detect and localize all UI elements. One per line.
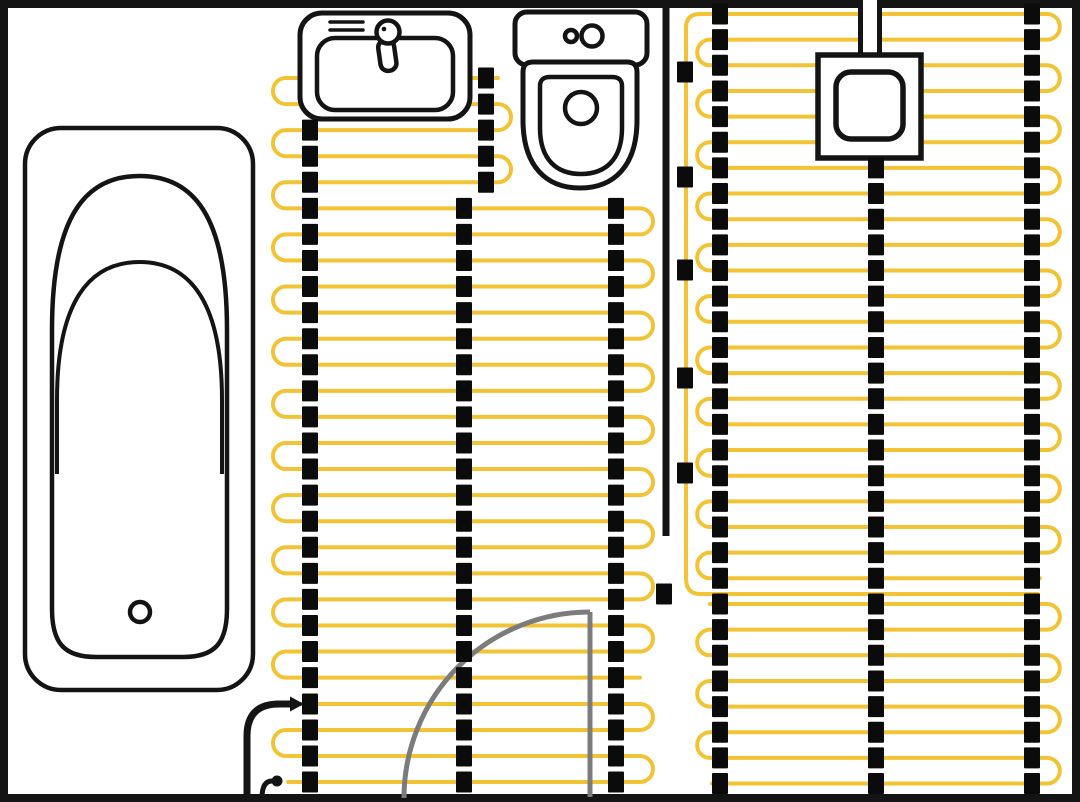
cable-fixing-clip <box>1024 363 1040 384</box>
cable-fixing-clip <box>712 132 728 153</box>
cable-fixing-clip <box>656 584 672 605</box>
toilet-button <box>582 26 603 47</box>
cable-fixing-clip <box>868 696 884 717</box>
cable-fixing-clip <box>1024 311 1040 332</box>
cable-fixing-clip <box>608 380 624 401</box>
cable-fixing-clip <box>1024 4 1040 25</box>
cable-fixing-clip <box>608 746 624 767</box>
faucet-dot <box>382 27 387 32</box>
cable-fixing-clip <box>302 694 318 715</box>
cable-fixing-clip <box>1024 722 1040 743</box>
cable-fixing-clip <box>302 250 318 271</box>
cable-fixing-clip <box>712 234 728 255</box>
cable-fixing-clip <box>456 198 472 219</box>
cable-fixing-clip <box>1024 234 1040 255</box>
bathtub <box>25 128 253 690</box>
bathtub-basin <box>52 176 227 657</box>
cable-fixing-clip <box>456 302 472 323</box>
cable-fixing-clip <box>456 615 472 636</box>
cable-fixing-clip <box>1024 132 1040 153</box>
cable-fixing-clip <box>677 167 693 188</box>
cable-fixing-clip <box>677 368 693 389</box>
cable-fixing-clip <box>1024 440 1040 461</box>
cable-fixing-clip <box>302 354 318 375</box>
cable-fixing-clip <box>868 773 884 794</box>
cable-fixing-clip <box>868 337 884 358</box>
cable-fixing-clip <box>868 363 884 384</box>
cable-fixing-clip <box>1024 414 1040 435</box>
cable-fixing-clip <box>868 645 884 666</box>
cable-fixing-clip <box>712 747 728 768</box>
cable-fixing-clip <box>302 224 318 245</box>
cable-fixing-clip <box>712 440 728 461</box>
cable-fixing-clip <box>302 172 318 193</box>
cable-fixing-clip <box>302 589 318 610</box>
cable-fixing-clip <box>712 594 728 615</box>
cable-fixing-clip <box>1024 260 1040 281</box>
cable-fixing-clip <box>478 120 494 141</box>
cable-fixing-clip <box>712 80 728 101</box>
cable-fixing-clip <box>1024 542 1040 563</box>
cable-fixing-clip <box>868 234 884 255</box>
cable-fixing-clip <box>302 459 318 480</box>
cable-fixing-clip <box>456 537 472 558</box>
faucet-icon <box>377 21 400 44</box>
cable-fixing-clip <box>712 722 728 743</box>
cable-fixing-clip <box>712 157 728 178</box>
cable-fixing-clip <box>478 146 494 167</box>
cable-fixing-clip <box>712 773 728 794</box>
cable-fixing-clip <box>302 432 318 453</box>
cable-fixing-clip <box>608 485 624 506</box>
cable-fixing-clip <box>1024 594 1040 615</box>
cable-fixing-clip <box>712 414 728 435</box>
toilet <box>515 12 647 188</box>
cable-fixing-clip <box>302 746 318 767</box>
sink <box>300 13 470 119</box>
cable-fixing-clip <box>868 414 884 435</box>
cable-fixing-clip <box>868 260 884 281</box>
cable-fixing-clip <box>712 337 728 358</box>
cable-fixing-clip <box>608 720 624 741</box>
cable-fixing-clip <box>1024 645 1040 666</box>
cable-fixing-clip <box>456 667 472 688</box>
cable-fixing-clip <box>1024 491 1040 512</box>
cable-fixing-clip <box>608 276 624 297</box>
toilet-flush-hole <box>565 92 597 124</box>
cable-fixing-clip <box>302 380 318 401</box>
cable-fixing-clip <box>456 459 472 480</box>
cable-fixing-clip <box>478 68 494 89</box>
cable-fixing-clip <box>1024 157 1040 178</box>
cable-fixing-clip <box>1024 388 1040 409</box>
cable-fixing-clip <box>712 106 728 127</box>
cable-fixing-clip <box>1024 106 1040 127</box>
cable-fixing-clip <box>712 363 728 384</box>
cable-fixing-clip <box>608 250 624 271</box>
cable-fixing-clip <box>302 563 318 584</box>
cable-fixing-clip <box>456 772 472 793</box>
bathtub-drain <box>130 602 150 622</box>
cable-fixing-clip <box>1024 773 1040 794</box>
cable-fixing-clip <box>608 615 624 636</box>
cable-fixing-clip <box>868 183 884 204</box>
cable-fixing-clip <box>1024 568 1040 589</box>
cable-fixing-clip <box>456 720 472 741</box>
cable-fixing-clip <box>868 311 884 332</box>
cable-fixing-clip <box>608 537 624 558</box>
cable-fixing-clip <box>456 589 472 610</box>
cable-fixing-clip <box>677 463 693 484</box>
cable-fixing-clip <box>456 380 472 401</box>
cable-fixing-clip <box>1024 696 1040 717</box>
cable-fixing-clip <box>1024 29 1040 50</box>
cable-fixing-clip <box>456 511 472 532</box>
cable-fixing-clip <box>868 670 884 691</box>
cable-fixing-clip <box>608 224 624 245</box>
cable-fixing-clip <box>1024 286 1040 307</box>
cable-fixing-clip <box>712 670 728 691</box>
cable-fixing-clip <box>712 29 728 50</box>
cable-fixing-clip <box>1024 209 1040 230</box>
cable-fixing-clip <box>868 465 884 486</box>
cable-fixing-clip <box>1024 55 1040 76</box>
cable-fixing-clip <box>1024 747 1040 768</box>
cable-fixing-clip <box>608 328 624 349</box>
cable-fixing-clip <box>868 542 884 563</box>
cable-fixing-clip <box>478 172 494 193</box>
cable-fixing-clip <box>712 645 728 666</box>
cable-fixing-clip <box>302 485 318 506</box>
cable-fixing-clip <box>868 491 884 512</box>
cable-fixing-clip <box>302 615 318 636</box>
cable-fixing-clip <box>302 146 318 167</box>
toilet-button <box>565 30 577 42</box>
cable-fixing-clip <box>1024 517 1040 538</box>
cable-fixing-clip <box>868 388 884 409</box>
cable-fixing-clip <box>608 354 624 375</box>
cable-fixing-clip <box>302 511 318 532</box>
cable-fixing-clip <box>712 517 728 538</box>
cable-fixing-clip <box>712 311 728 332</box>
cable-fixing-clip <box>712 388 728 409</box>
cable-fixing-clip <box>302 328 318 349</box>
cable-fixing-clip <box>608 694 624 715</box>
cable-fixing-clip <box>302 198 318 219</box>
cable-fixing-clip <box>868 440 884 461</box>
cable-fixing-clip <box>302 406 318 427</box>
cable-fixing-clip <box>1024 183 1040 204</box>
cable-fixing-clip <box>868 594 884 615</box>
cable-fixing-clip <box>302 641 318 662</box>
cable-fixing-clip <box>1024 670 1040 691</box>
cable-fixing-clip <box>1024 619 1040 640</box>
cable-fixing-clip <box>456 276 472 297</box>
cable-fixing-clip <box>712 209 728 230</box>
cable-fixing-clip <box>302 667 318 688</box>
cable-fixing-clip <box>712 4 728 25</box>
cable-fixing-clip <box>712 619 728 640</box>
cable-fixing-clip <box>868 286 884 307</box>
thermostat-dial <box>836 72 903 139</box>
cable-fixing-clip <box>302 276 318 297</box>
cable-fixing-clip <box>677 260 693 281</box>
cable-fixing-clip <box>677 62 693 83</box>
cable-fixing-clip <box>868 209 884 230</box>
cable-fixing-clip <box>478 94 494 115</box>
cable-fixing-clip <box>302 302 318 323</box>
cable-fixing-clip <box>1024 80 1040 101</box>
cable-fixing-clip <box>608 563 624 584</box>
cable-fixing-clip <box>456 563 472 584</box>
cable-fixing-clip <box>608 302 624 323</box>
cable-fixing-clip <box>302 720 318 741</box>
cable-fixing-clip <box>608 772 624 793</box>
cable-fixing-clip <box>868 157 884 178</box>
cable-fixing-clip <box>868 722 884 743</box>
cable-fixing-clip <box>868 747 884 768</box>
cable-fixing-clip <box>608 667 624 688</box>
floor-plan <box>0 0 1080 802</box>
cable-fixing-clip <box>302 772 318 793</box>
cable-fixing-clip <box>456 694 472 715</box>
cable-fixing-clip <box>456 354 472 375</box>
cable-fixing-clip <box>712 696 728 717</box>
cable-fixing-clip <box>608 641 624 662</box>
cable-fixing-clip <box>712 183 728 204</box>
cable-fixing-clip <box>608 432 624 453</box>
cable-fixing-clip <box>712 465 728 486</box>
cable-fixing-clip <box>712 542 728 563</box>
cable-fixing-clip <box>456 485 472 506</box>
cable-fixing-clip <box>302 537 318 558</box>
cable-fixing-clip <box>456 250 472 271</box>
cable-fixing-clip <box>712 568 728 589</box>
cable-fixing-clip <box>712 286 728 307</box>
cable-fixing-clip <box>456 406 472 427</box>
cable-fixing-clip <box>868 517 884 538</box>
cable-fixing-clip <box>608 589 624 610</box>
cable-fixing-clip <box>608 511 624 532</box>
cable-fixing-clip <box>456 746 472 767</box>
cable-fixing-clip <box>1024 465 1040 486</box>
cable-fixing-clip <box>608 406 624 427</box>
cable-fixing-clip <box>1024 337 1040 358</box>
cable-fixing-clip <box>456 224 472 245</box>
cable-fixing-clip <box>712 491 728 512</box>
cable-fixing-clip <box>868 568 884 589</box>
floor-sensor-probe <box>272 776 283 787</box>
cable-fixing-clip <box>608 459 624 480</box>
cable-fixing-clip <box>712 55 728 76</box>
cable-fixing-clip <box>868 619 884 640</box>
floor-plan-svg <box>0 0 1080 802</box>
cable-fixing-clip <box>302 120 318 141</box>
cable-fixing-clip <box>456 641 472 662</box>
cable-fixing-clip <box>712 260 728 281</box>
cable-fixing-clip <box>608 198 624 219</box>
cable-fixing-clip <box>456 432 472 453</box>
cable-fixing-clip <box>456 328 472 349</box>
